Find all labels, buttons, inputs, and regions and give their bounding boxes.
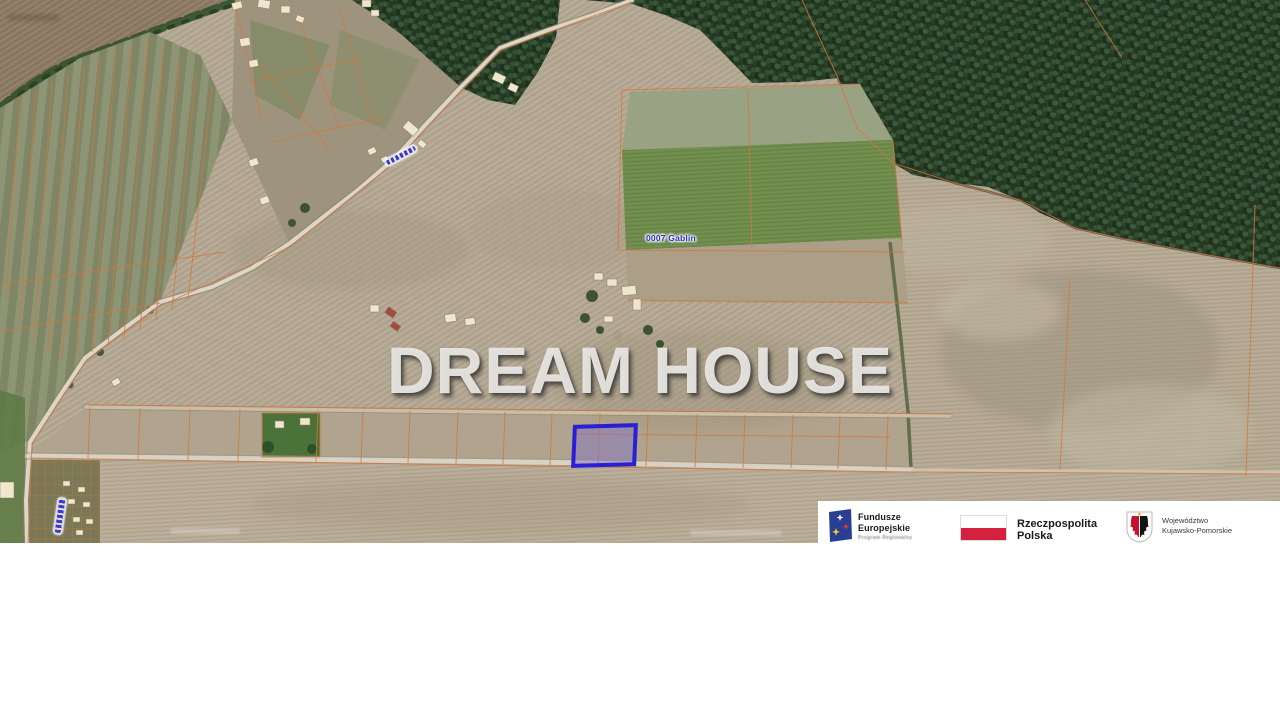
flag-red-stripe: [961, 528, 1006, 540]
voivodeship-line1: Województwo: [1162, 516, 1232, 526]
eu-funds-subtitle: Program Regionalny: [858, 535, 912, 541]
voivodeship-label: Województwo Kujawsko-Pomorskie: [1162, 516, 1232, 535]
eu-funds-flag-icon: [828, 509, 853, 543]
satellite-terrain: [0, 0, 1280, 543]
voivodeship-crest-icon: [1126, 511, 1153, 543]
logo-bar: Fundusze Europejskie Program Regionalny …: [818, 501, 1280, 543]
eu-funds-line1: Fundusze: [858, 512, 912, 523]
highlighted-parcel-outline: [571, 423, 638, 468]
bottom-margin: [0, 543, 1280, 726]
imagery-watermark-smudge: [170, 528, 240, 534]
republic-label: Rzeczpospolita Polska: [1017, 518, 1097, 542]
imagery-watermark-smudge: [690, 530, 782, 536]
satellite-map: DREAM HOUSE 0007 Gablin Fundusze Europej…: [0, 0, 1280, 543]
republic-line1: Rzeczpospolita: [1017, 518, 1097, 530]
flag-white-stripe: [961, 516, 1006, 528]
agency-watermark: DREAM HOUSE: [0, 337, 1280, 403]
eu-funds-line2: Europejskie: [858, 523, 912, 534]
poland-flag-icon: [960, 515, 1007, 541]
voivodeship-line2: Kujawsko-Pomorskie: [1162, 526, 1232, 536]
eu-funds-label: Fundusze Europejskie Program Regionalny: [858, 512, 912, 541]
republic-line2: Polska: [1017, 530, 1097, 542]
listing-map-screenshot: DREAM HOUSE 0007 Gablin Fundusze Europej…: [0, 0, 1280, 726]
satellite-credit-smudge: [8, 14, 60, 21]
district-label: 0007 Gablin: [646, 233, 696, 243]
